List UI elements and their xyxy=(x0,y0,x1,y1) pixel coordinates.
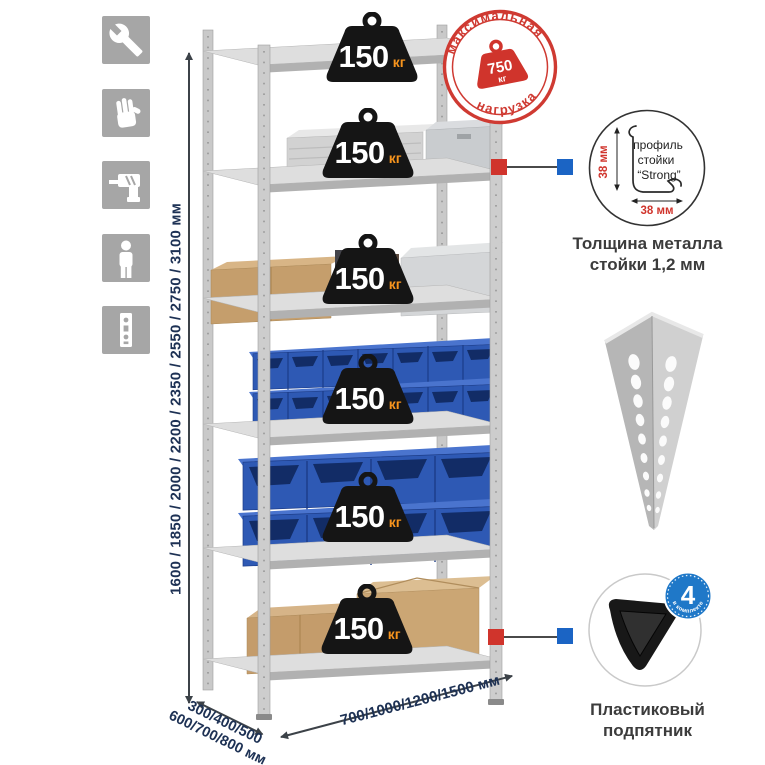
weight-value: 150 xyxy=(334,135,384,171)
max-load-stamp: максимальная нагрузка 750 кг xyxy=(431,0,569,136)
profile-title-1: профиль xyxy=(633,138,683,152)
product-infographic: 1600 / 1850 / 2000 / 2200 / 2350 / 2550 … xyxy=(0,0,765,765)
weight-value: 150 xyxy=(333,611,383,647)
plastic-foot-detail: 4 в комплекте xyxy=(580,566,730,700)
weight-value: 150 xyxy=(334,261,384,297)
profile-title-3: “Strong” xyxy=(637,168,680,182)
weight-unit: кг xyxy=(389,514,402,530)
weight-unit: кг xyxy=(393,54,406,70)
connector-line xyxy=(507,166,557,168)
angle-post-image xyxy=(597,302,743,538)
foot-caption: Пластиковый подпятник xyxy=(565,699,730,742)
drill-icon xyxy=(102,161,150,209)
post-marker-red xyxy=(491,159,507,175)
foot-marker-blue xyxy=(557,628,573,644)
connector-line xyxy=(504,636,557,638)
height-dimension-line xyxy=(188,53,190,703)
weight-unit: кг xyxy=(389,150,402,166)
profile-caption-line1: Толщина металла xyxy=(565,233,730,254)
post-marker-blue xyxy=(557,159,573,175)
shelf-load-weight: 150кг xyxy=(320,354,416,428)
wrench-icon xyxy=(102,16,150,64)
included-count-badge: 4 в комплекте xyxy=(665,573,712,620)
weight-unit: кг xyxy=(388,626,401,642)
rack-post-icon xyxy=(102,306,150,354)
shelf-load-weight: 150кг xyxy=(320,108,416,182)
profile-caption: Толщина металла стойки 1,2 мм xyxy=(565,233,730,276)
shelf-load-weight: 150кг xyxy=(319,584,415,658)
weight-value: 150 xyxy=(334,381,384,417)
profile-caption-line2: стойки 1,2 мм xyxy=(565,254,730,275)
shelf-load-weight: 150кг xyxy=(320,234,416,308)
weight-value: 150 xyxy=(334,499,384,535)
profile-title-2: стойки xyxy=(638,153,675,167)
shelf-load-weight: 150кг xyxy=(320,472,416,546)
weight-value: 150 xyxy=(338,39,388,75)
profile-dim-vertical: 38 мм xyxy=(598,145,610,178)
foot-caption-line2: подпятник xyxy=(565,720,730,741)
badge-count: 4 xyxy=(681,580,696,610)
shelf-load-weight: 150кг xyxy=(324,12,420,86)
foot-marker-red xyxy=(488,629,504,645)
profile-dim-horizontal: 38 мм xyxy=(640,205,673,217)
height-dimension-label: 1600 / 1850 / 2000 / 2200 / 2350 / 2550 … xyxy=(168,203,185,595)
weight-unit: кг xyxy=(389,396,402,412)
post-profile-detail: 38 мм 38 мм профиль стойки “Strong” xyxy=(585,106,709,230)
person-icon xyxy=(102,234,150,282)
weight-unit: кг xyxy=(389,276,402,292)
foot-caption-line1: Пластиковый xyxy=(565,699,730,720)
gloves-icon xyxy=(102,89,150,137)
